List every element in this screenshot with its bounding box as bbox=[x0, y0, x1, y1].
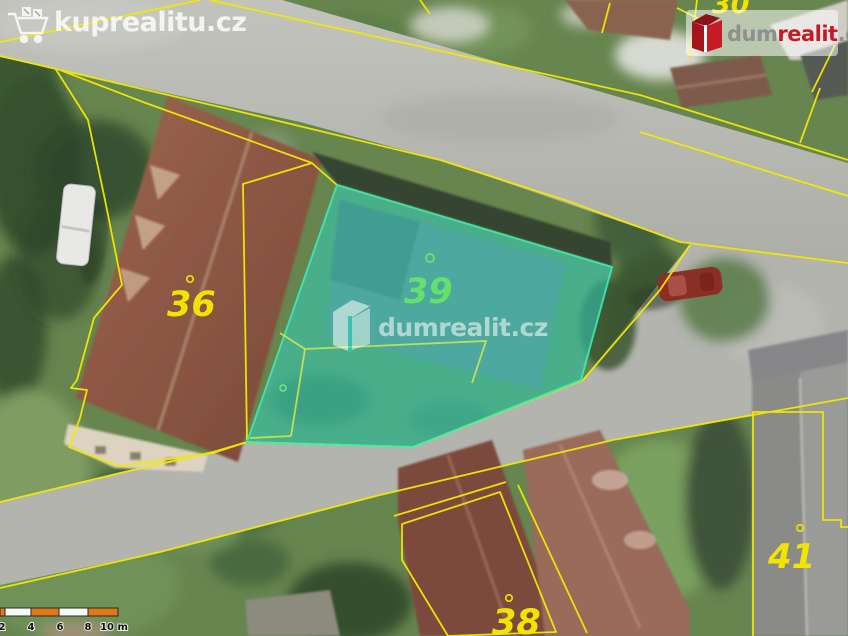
top-right-logo: dumrealit.cz bbox=[686, 10, 848, 56]
scale-tick-6: 6 bbox=[57, 622, 64, 633]
scale-tick-10m: 10 m bbox=[100, 622, 128, 633]
center-watermark-text: dumrealit.cz bbox=[378, 313, 548, 342]
parcel-label-36: 36 bbox=[167, 285, 216, 325]
scale-tick-8: 8 bbox=[85, 622, 92, 633]
logo-text-dum: dum bbox=[727, 22, 777, 46]
scale-tick-4: 4 bbox=[28, 622, 35, 633]
logo-text-realit: realit bbox=[777, 22, 838, 46]
logo-text-cz: .cz bbox=[838, 22, 848, 46]
parcel-label-38: 38 bbox=[492, 603, 541, 636]
aerial-map-canvas[interactable]: 30 36 39 38 41 dumrealit.cz kuprealitu.c… bbox=[0, 0, 848, 636]
top-left-watermark-text: kuprealitu.cz bbox=[54, 7, 246, 38]
map-image[interactable]: 30 36 39 38 41 dumrealit.cz kuprealitu.c… bbox=[0, 0, 848, 636]
parcel-label-41: 41 bbox=[767, 537, 815, 577]
parcel-label-39: 39 bbox=[404, 272, 453, 312]
scale-tick-2: 2 bbox=[0, 622, 6, 633]
svg-text:dumrealit.cz: dumrealit.cz bbox=[727, 22, 848, 46]
